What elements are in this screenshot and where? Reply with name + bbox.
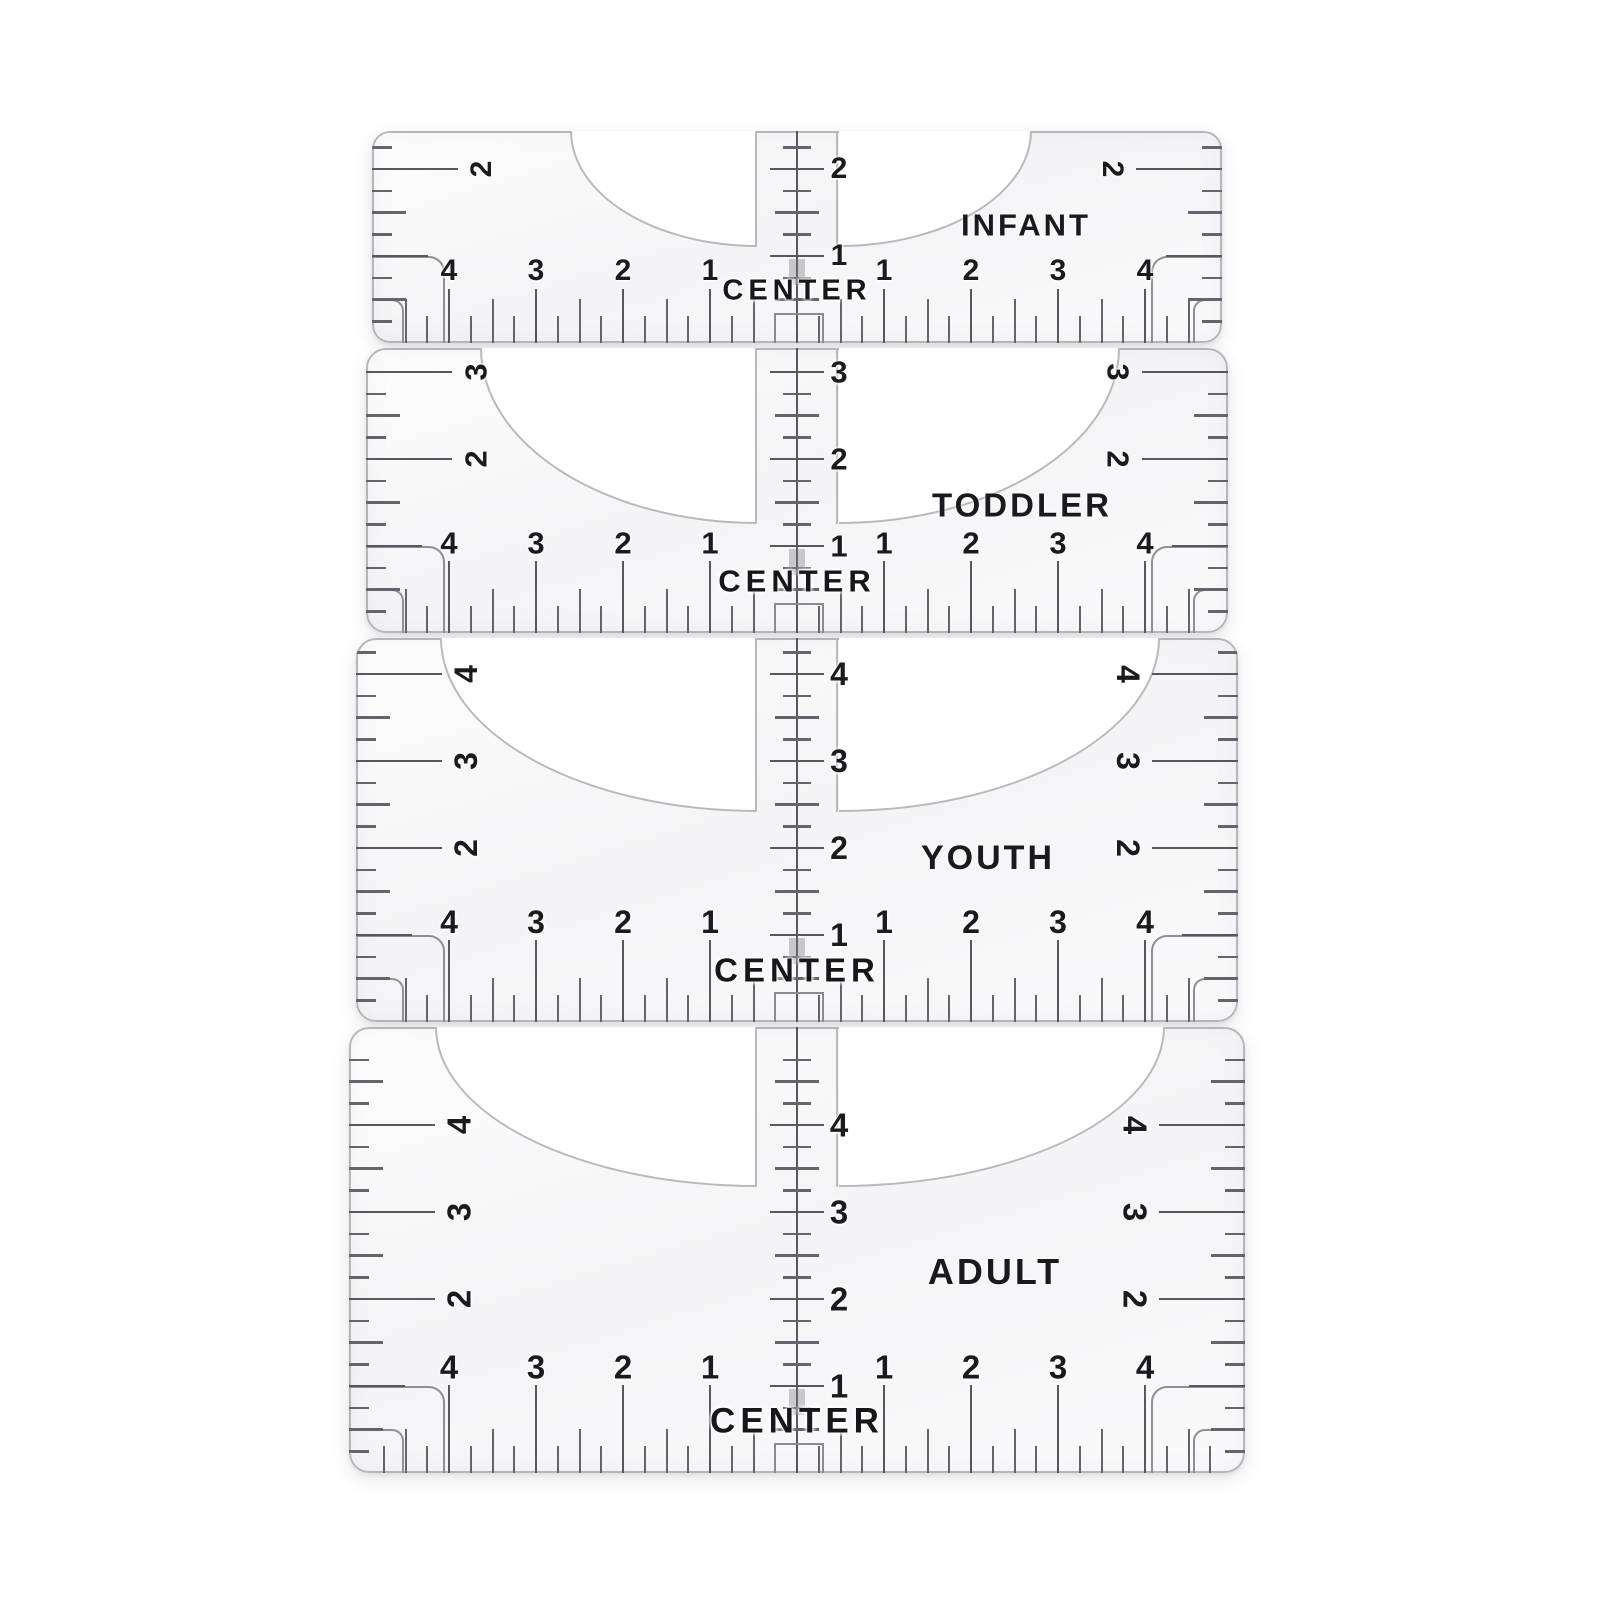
edge-tick-left [366, 414, 400, 417]
bottom-edge-tick [861, 606, 863, 633]
size-label-toddler: TODDLER [932, 489, 1112, 522]
neckline-cutout-left [570, 131, 757, 247]
edge-tick-right [1211, 1428, 1245, 1431]
edge-tick-left [349, 1320, 369, 1323]
strip-tick [783, 480, 811, 483]
strip-inch-number: 1 [830, 1370, 848, 1403]
bottom-scale-tick [622, 561, 625, 633]
strip-inch-number: 2 [831, 154, 848, 184]
strip-tick [783, 825, 811, 828]
edge-tick-right [1211, 1167, 1245, 1170]
bottom-edge-tick [1035, 1446, 1037, 1473]
edge-tick-left [366, 458, 452, 461]
bottom-edge-tick [426, 316, 428, 343]
strip-tick [775, 414, 819, 417]
edge-tick-left [366, 436, 386, 439]
bottom-scale-tick [883, 289, 886, 343]
strip-tick [770, 934, 824, 937]
bottom-scale-tick [448, 561, 451, 633]
strip-tick [775, 803, 819, 806]
center-label: CENTER [710, 1404, 884, 1439]
edge-tick-left [372, 168, 458, 171]
edge-tick-right [1225, 1320, 1245, 1323]
strip-tick [783, 912, 811, 915]
bottom-edge-tick [666, 1429, 668, 1473]
edge-tick-left [356, 673, 442, 676]
edge-tick-right [1225, 1102, 1245, 1105]
bottom-scale-number-right: 3 [1050, 256, 1067, 286]
bottom-edge-tick [948, 606, 950, 633]
edge-tick-right [1202, 190, 1222, 193]
strip-tick [783, 1276, 811, 1279]
bottom-edge-tick [1101, 1429, 1103, 1473]
bottom-scale-tick [1144, 289, 1147, 343]
bottom-edge-tick [1166, 995, 1168, 1022]
bottom-scale-number-right: 3 [1049, 528, 1066, 559]
edge-tick-right [1218, 912, 1238, 915]
edge-tick-left [349, 1167, 383, 1170]
center-label: CENTER [722, 277, 871, 306]
bottom-edge-tick [992, 606, 994, 633]
bottom-edge-tick [861, 995, 863, 1022]
bottom-scale-tick [535, 561, 538, 633]
edge-tick-right [1159, 1124, 1245, 1127]
bottom-edge-tick [1101, 978, 1103, 1022]
edge-tick-right [1218, 825, 1238, 828]
strip-tick [783, 523, 811, 526]
edge-tick-right [1189, 1385, 1245, 1388]
bottom-scale-tick [622, 289, 625, 343]
bottom-edge-tick [927, 299, 929, 343]
edge-tick-right [1208, 480, 1228, 483]
bottom-scale-number-right: 2 [962, 1351, 980, 1384]
edge-tick-left [372, 320, 392, 323]
strip-inch-number: 2 [830, 1283, 848, 1316]
bottom-scale-number-left: 2 [614, 528, 631, 559]
bottom-edge-tick [1014, 978, 1016, 1022]
bottom-scale-number-left: 4 [441, 256, 458, 286]
strip-tick [770, 673, 824, 676]
edge-tick-left [349, 1450, 369, 1453]
strip-tick [770, 847, 824, 850]
bottom-edge-tick [927, 978, 929, 1022]
bottom-edge-tick [470, 606, 472, 633]
edge-tick-right [1204, 890, 1238, 893]
strip-inch-number: 3 [830, 745, 848, 777]
bottom-edge-tick [513, 316, 515, 343]
bottom-edge-tick [948, 1446, 950, 1473]
edge-tick-left [366, 567, 386, 570]
bottom-edge-tick [579, 1429, 581, 1473]
edge-tick-left [356, 999, 376, 1002]
bottom-edge-tick [600, 995, 602, 1022]
bottom-scale-number-right: 3 [1049, 906, 1067, 938]
bottom-scale-tick [709, 289, 712, 343]
edge-tick-right [1159, 1211, 1245, 1214]
edge-tick-left [356, 695, 376, 698]
edge-tick-left [372, 298, 406, 301]
bottom-edge-tick [1035, 316, 1037, 343]
bottom-scale-number-left: 1 [701, 906, 719, 938]
edge-inch-number-left: 3 [461, 363, 492, 380]
edge-tick-left [356, 890, 390, 893]
edge-tick-left [356, 803, 390, 806]
bottom-edge-tick [1209, 1446, 1211, 1473]
bottom-edge-tick [470, 1446, 472, 1473]
bottom-edge-tick [948, 316, 950, 343]
bottom-edge-tick [992, 995, 994, 1022]
center-label: CENTER [714, 954, 880, 987]
bottom-edge-tick [426, 995, 428, 1022]
ruler-infant: 122243211234CENTERINFANT [372, 131, 1222, 343]
strip-tick [770, 1211, 824, 1214]
edge-tick-left [366, 501, 400, 504]
edge-tick-right [1202, 146, 1222, 149]
bottom-edge-tick [1166, 1446, 1168, 1473]
bottom-edge-tick [513, 1446, 515, 1473]
edge-tick-right [1152, 847, 1238, 850]
edge-tick-right [1166, 255, 1222, 258]
edge-tick-left [349, 1298, 435, 1301]
bottom-scale-tick [448, 289, 451, 343]
bottom-edge-tick [405, 1429, 407, 1473]
edge-tick-right [1225, 1276, 1245, 1279]
edge-tick-right [1208, 610, 1228, 613]
edge-inch-number-right: 2 [1112, 839, 1144, 857]
edge-inch-number-left: 4 [443, 1116, 476, 1134]
bottom-edge-tick [731, 316, 733, 343]
bottom-scale-tick [709, 561, 712, 633]
bottom-scale-number-left: 4 [440, 1351, 458, 1384]
strip-inch-number: 1 [830, 531, 847, 562]
bottom-scale-number-left: 4 [440, 906, 458, 938]
strip-inch-number: 2 [830, 832, 848, 864]
strip-tick [775, 1341, 819, 1344]
strip-tick [783, 1320, 811, 1323]
edge-tick-right [1152, 673, 1238, 676]
edge-tick-right [1172, 545, 1228, 548]
bottom-scale-tick [883, 561, 886, 633]
edge-tick-left [349, 1124, 435, 1127]
strip-tick [783, 869, 811, 872]
edge-tick-right [1225, 1233, 1245, 1236]
edge-tick-right [1208, 523, 1228, 526]
bottom-scale-tick [1057, 940, 1060, 1022]
strip-tick [783, 782, 811, 785]
bottom-edge-tick [731, 606, 733, 633]
bottom-scale-tick [535, 289, 538, 343]
edge-tick-right [1218, 999, 1238, 1002]
edge-tick-right [1211, 1080, 1245, 1083]
bottom-scale-tick [448, 1385, 451, 1473]
edge-tick-left [356, 825, 376, 828]
bottom-edge-tick [1166, 316, 1168, 343]
size-label-adult: ADULT [928, 1254, 1062, 1290]
bottom-edge-tick [644, 316, 646, 343]
center-marker-box [774, 992, 824, 1022]
bottom-scale-number-right: 3 [1049, 1351, 1067, 1384]
bottom-scale-number-left: 3 [528, 256, 545, 286]
bottom-scale-number-left: 4 [440, 528, 457, 559]
edge-tick-left [372, 211, 406, 214]
edge-tick-right [1136, 168, 1222, 171]
bottom-scale-number-right: 1 [875, 528, 892, 559]
strip-tick [775, 1080, 819, 1083]
strip-tick [770, 1298, 824, 1301]
edge-tick-left [372, 190, 392, 193]
strip-tick [783, 1189, 811, 1192]
edge-tick-right [1188, 298, 1222, 301]
strip-tick [770, 760, 824, 763]
strip-tick [775, 890, 819, 893]
edge-tick-left [356, 738, 376, 741]
edge-tick-left [372, 255, 428, 258]
edge-inch-number-left: 4 [450, 665, 482, 683]
edge-inch-number-right: 3 [1112, 752, 1144, 770]
bottom-edge-tick [492, 589, 494, 633]
strip-inch-number: 1 [830, 919, 848, 951]
bottom-edge-tick [644, 1446, 646, 1473]
edge-inch-number-left: 3 [443, 1203, 476, 1221]
edge-inch-number-right: 4 [1119, 1116, 1152, 1134]
bottom-scale-tick [622, 940, 625, 1022]
bottom-edge-tick [1188, 1429, 1190, 1473]
bottom-edge-tick [687, 606, 689, 633]
edge-inch-number-left: 2 [467, 161, 497, 178]
edge-tick-right [1204, 716, 1238, 719]
bottom-edge-tick [666, 589, 668, 633]
bottom-edge-tick [948, 995, 950, 1022]
edge-tick-left [372, 277, 392, 280]
bottom-edge-tick [600, 316, 602, 343]
edge-tick-right [1204, 977, 1238, 980]
edge-inch-number-left: 2 [461, 450, 492, 467]
center-marker-box [774, 313, 824, 343]
edge-tick-left [356, 956, 376, 959]
edge-tick-left [349, 1102, 369, 1105]
strip-inch-number: 4 [830, 658, 848, 690]
strip-tick [775, 1254, 819, 1257]
edge-tick-right [1208, 567, 1228, 570]
bottom-edge-tick [1079, 606, 1081, 633]
bottom-scale-tick [970, 289, 973, 343]
edge-tick-right [1194, 588, 1228, 591]
bottom-edge-tick [579, 589, 581, 633]
neckline-cutout-right [839, 1027, 1165, 1187]
edge-tick-right [1202, 320, 1222, 323]
bottom-edge-tick [861, 316, 863, 343]
bottom-edge-tick [557, 606, 559, 633]
bottom-edge-tick [1101, 299, 1103, 343]
bottom-edge-tick [557, 995, 559, 1022]
edge-tick-left [349, 1080, 383, 1083]
strip-tick [783, 1233, 811, 1236]
bottom-scale-tick [622, 1385, 625, 1473]
edge-inch-number-left: 2 [443, 1290, 476, 1308]
bottom-edge-tick [1188, 589, 1190, 633]
bottom-edge-tick [405, 589, 407, 633]
bottom-scale-number-left: 2 [614, 906, 632, 938]
bottom-scale-tick [970, 940, 973, 1022]
bottom-scale-tick [1144, 940, 1147, 1022]
edge-tick-left [349, 1059, 369, 1062]
edge-tick-left [349, 1254, 383, 1257]
edge-tick-right [1188, 211, 1222, 214]
center-marker-box [774, 603, 824, 633]
bottom-edge-tick [905, 995, 907, 1022]
bottom-edge-tick [861, 1446, 863, 1473]
bottom-edge-tick [905, 606, 907, 633]
bottom-edge-tick [405, 299, 407, 343]
size-label-infant: INFANT [961, 210, 1091, 241]
edge-tick-right [1225, 1146, 1245, 1149]
ruler-adult: 123422334443211234CENTERADULT [349, 1027, 1245, 1473]
bottom-edge-tick [731, 995, 733, 1022]
bottom-scale-number-left: 2 [614, 1351, 632, 1384]
bottom-scale-tick [1057, 289, 1060, 343]
bottom-scale-number-left: 1 [701, 1351, 719, 1384]
edge-tick-left [356, 651, 376, 654]
bottom-edge-tick [666, 978, 668, 1022]
edge-tick-left [349, 1341, 383, 1344]
edge-tick-left [356, 847, 442, 850]
edge-tick-right [1218, 869, 1238, 872]
bottom-edge-tick [557, 1446, 559, 1473]
bottom-scale-tick [1144, 561, 1147, 633]
edge-tick-left [366, 523, 386, 526]
edge-inch-number-right: 2 [1119, 1290, 1152, 1308]
bottom-edge-tick [1122, 316, 1124, 343]
bottom-edge-tick [644, 606, 646, 633]
edge-tick-left [349, 1363, 369, 1366]
edge-inch-number-left: 2 [450, 839, 482, 857]
bottom-edge-tick [1079, 995, 1081, 1022]
bottom-scale-tick [709, 940, 712, 1022]
edge-inch-number-left: 3 [450, 752, 482, 770]
edge-tick-right [1225, 1450, 1245, 1453]
edge-tick-left [356, 782, 376, 785]
strip-tick [770, 458, 824, 461]
edge-tick-right [1194, 414, 1228, 417]
edge-tick-left [349, 1385, 405, 1388]
bottom-edge-tick [992, 316, 994, 343]
strip-tick [775, 211, 819, 214]
ruler-youth: 123422334443211234CENTERYOUTH [356, 638, 1238, 1022]
bottom-edge-tick [687, 316, 689, 343]
bottom-scale-tick [970, 1385, 973, 1473]
edge-tick-right [1202, 233, 1222, 236]
strip-tick [783, 436, 811, 439]
strip-tick [783, 1363, 811, 1366]
edge-tick-left [349, 1407, 369, 1410]
edge-tick-right [1218, 956, 1238, 959]
bottom-scale-number-right: 4 [1136, 906, 1154, 938]
bottom-edge-tick [1188, 978, 1190, 1022]
bottom-edge-tick [1122, 1446, 1124, 1473]
edge-inch-number-right: 3 [1103, 363, 1134, 380]
bottom-edge-tick [992, 1446, 994, 1473]
bottom-scale-number-right: 2 [962, 528, 979, 559]
bottom-edge-tick [905, 316, 907, 343]
edge-tick-right [1142, 371, 1228, 374]
bottom-scale-number-right: 2 [962, 906, 980, 938]
edge-tick-left [366, 371, 452, 374]
bottom-scale-number-left: 1 [702, 256, 719, 286]
bottom-edge-tick [557, 316, 559, 343]
bottom-edge-tick [600, 606, 602, 633]
edge-tick-right [1202, 277, 1222, 280]
strip-tick [783, 233, 811, 236]
edge-tick-left [366, 393, 386, 396]
bottom-edge-tick [383, 1446, 385, 1473]
strip-tick [783, 651, 811, 654]
strip-tick [770, 255, 824, 258]
size-label-youth: YOUTH [921, 841, 1055, 875]
edge-tick-left [372, 146, 392, 149]
edge-tick-right [1182, 934, 1238, 937]
edge-inch-number-right: 2 [1097, 161, 1127, 178]
bottom-scale-number-right: 4 [1136, 528, 1153, 559]
bottom-edge-tick [666, 299, 668, 343]
bottom-edge-tick [426, 1446, 428, 1473]
strip-tick [770, 168, 824, 171]
bottom-edge-tick [492, 299, 494, 343]
strip-tick [775, 1167, 819, 1170]
edge-inch-number-right: 3 [1119, 1203, 1152, 1221]
edge-tick-left [349, 1189, 369, 1192]
bottom-edge-tick [470, 316, 472, 343]
center-label: CENTER [718, 566, 875, 597]
bottom-scale-number-left: 3 [527, 528, 544, 559]
bottom-scale-tick [535, 940, 538, 1022]
strip-tick [783, 1059, 811, 1062]
bottom-edge-tick [1101, 589, 1103, 633]
bottom-edge-tick [905, 1446, 907, 1473]
bottom-scale-tick [1057, 1385, 1060, 1473]
edge-tick-right [1159, 1298, 1245, 1301]
bottom-edge-tick [1122, 995, 1124, 1022]
strip-tick [783, 393, 811, 396]
edge-tick-left [356, 934, 412, 937]
bottom-scale-number-right: 2 [963, 256, 980, 286]
strip-tick [783, 146, 811, 149]
edge-tick-right [1218, 782, 1238, 785]
bottom-scale-tick [970, 561, 973, 633]
bottom-edge-tick [492, 1429, 494, 1473]
bottom-edge-tick [1014, 1429, 1016, 1473]
bottom-scale-number-right: 1 [875, 1351, 893, 1384]
bottom-scale-tick [883, 940, 886, 1022]
bottom-edge-tick [1122, 606, 1124, 633]
strip-inch-number: 3 [830, 1196, 848, 1229]
strip-tick [770, 545, 824, 548]
edge-inch-number-right: 2 [1103, 450, 1134, 467]
edge-tick-right [1218, 651, 1238, 654]
strip-inch-number: 2 [830, 444, 847, 475]
strip-tick [770, 1124, 824, 1127]
bottom-edge-tick [644, 995, 646, 1022]
edge-tick-right [1152, 760, 1238, 763]
bottom-edge-tick [492, 978, 494, 1022]
strip-tick [775, 501, 819, 504]
edge-tick-right [1204, 803, 1238, 806]
bottom-scale-number-right: 1 [876, 256, 893, 286]
strip-tick [770, 1385, 824, 1388]
strip-tick [783, 1102, 811, 1105]
bottom-edge-tick [1014, 299, 1016, 343]
edge-tick-left [356, 977, 390, 980]
edge-tick-left [366, 480, 386, 483]
